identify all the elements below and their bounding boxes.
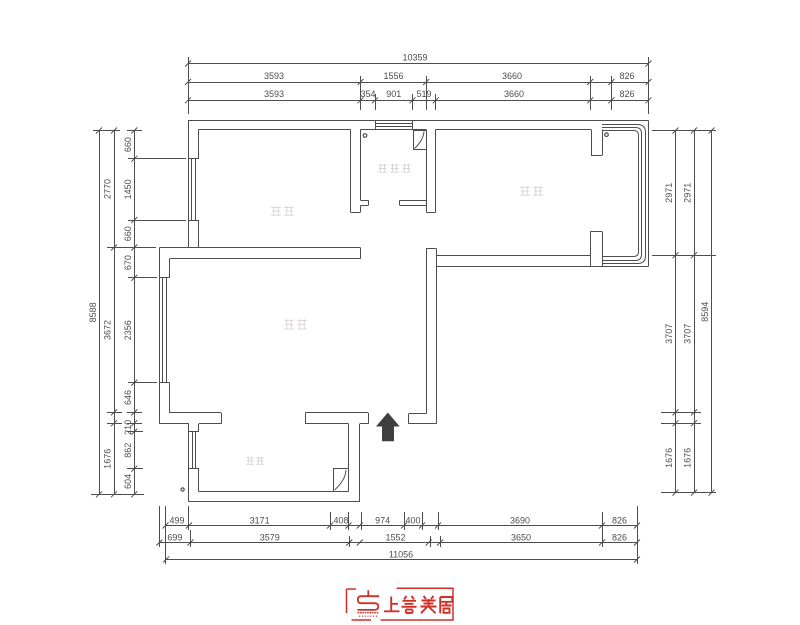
svg-text:499: 499 bbox=[169, 516, 184, 526]
svg-text:8594: 8594 bbox=[700, 302, 710, 322]
svg-text:901: 901 bbox=[386, 89, 401, 99]
svg-text:3579: 3579 bbox=[260, 533, 280, 543]
svg-text:2971: 2971 bbox=[664, 183, 674, 203]
svg-text:3672: 3672 bbox=[103, 320, 113, 340]
svg-text:3707: 3707 bbox=[683, 324, 693, 344]
svg-text:1450: 1450 bbox=[123, 179, 133, 199]
svg-text:2971: 2971 bbox=[683, 183, 693, 203]
svg-text:1676: 1676 bbox=[103, 449, 113, 469]
svg-text:1552: 1552 bbox=[385, 533, 405, 543]
svg-text:1676: 1676 bbox=[664, 448, 674, 468]
svg-text:10359: 10359 bbox=[402, 52, 427, 62]
svg-text:519: 519 bbox=[416, 89, 431, 99]
svg-text:826: 826 bbox=[612, 533, 627, 543]
svg-text:3707: 3707 bbox=[664, 324, 674, 344]
svg-text:3660: 3660 bbox=[504, 89, 524, 99]
svg-text:604: 604 bbox=[123, 474, 133, 489]
svg-text:8588: 8588 bbox=[88, 302, 98, 322]
svg-text:862: 862 bbox=[123, 443, 133, 458]
svg-text:2356: 2356 bbox=[123, 320, 133, 340]
svg-text:354: 354 bbox=[360, 89, 375, 99]
svg-text:3593: 3593 bbox=[264, 71, 284, 81]
svg-text:646: 646 bbox=[123, 390, 133, 405]
svg-text:3171: 3171 bbox=[250, 516, 270, 526]
svg-text:210: 210 bbox=[123, 420, 133, 435]
svg-text:1556: 1556 bbox=[383, 71, 403, 81]
svg-text:660: 660 bbox=[123, 226, 133, 241]
svg-text:699: 699 bbox=[167, 533, 182, 543]
svg-text:3650: 3650 bbox=[511, 533, 531, 543]
svg-text:2770: 2770 bbox=[103, 179, 113, 199]
svg-text:670: 670 bbox=[123, 255, 133, 270]
svg-text:660: 660 bbox=[123, 137, 133, 152]
svg-text:826: 826 bbox=[619, 89, 634, 99]
svg-text:1676: 1676 bbox=[683, 448, 693, 468]
svg-text:974: 974 bbox=[375, 516, 390, 526]
svg-text:826: 826 bbox=[612, 516, 627, 526]
svg-text:11056: 11056 bbox=[389, 550, 413, 560]
svg-text:3690: 3690 bbox=[510, 516, 530, 526]
svg-text:408: 408 bbox=[333, 516, 348, 526]
svg-text:3660: 3660 bbox=[502, 71, 522, 81]
svg-text:400: 400 bbox=[405, 516, 420, 526]
svg-text:826: 826 bbox=[619, 71, 634, 81]
svg-text:3593: 3593 bbox=[264, 89, 284, 99]
